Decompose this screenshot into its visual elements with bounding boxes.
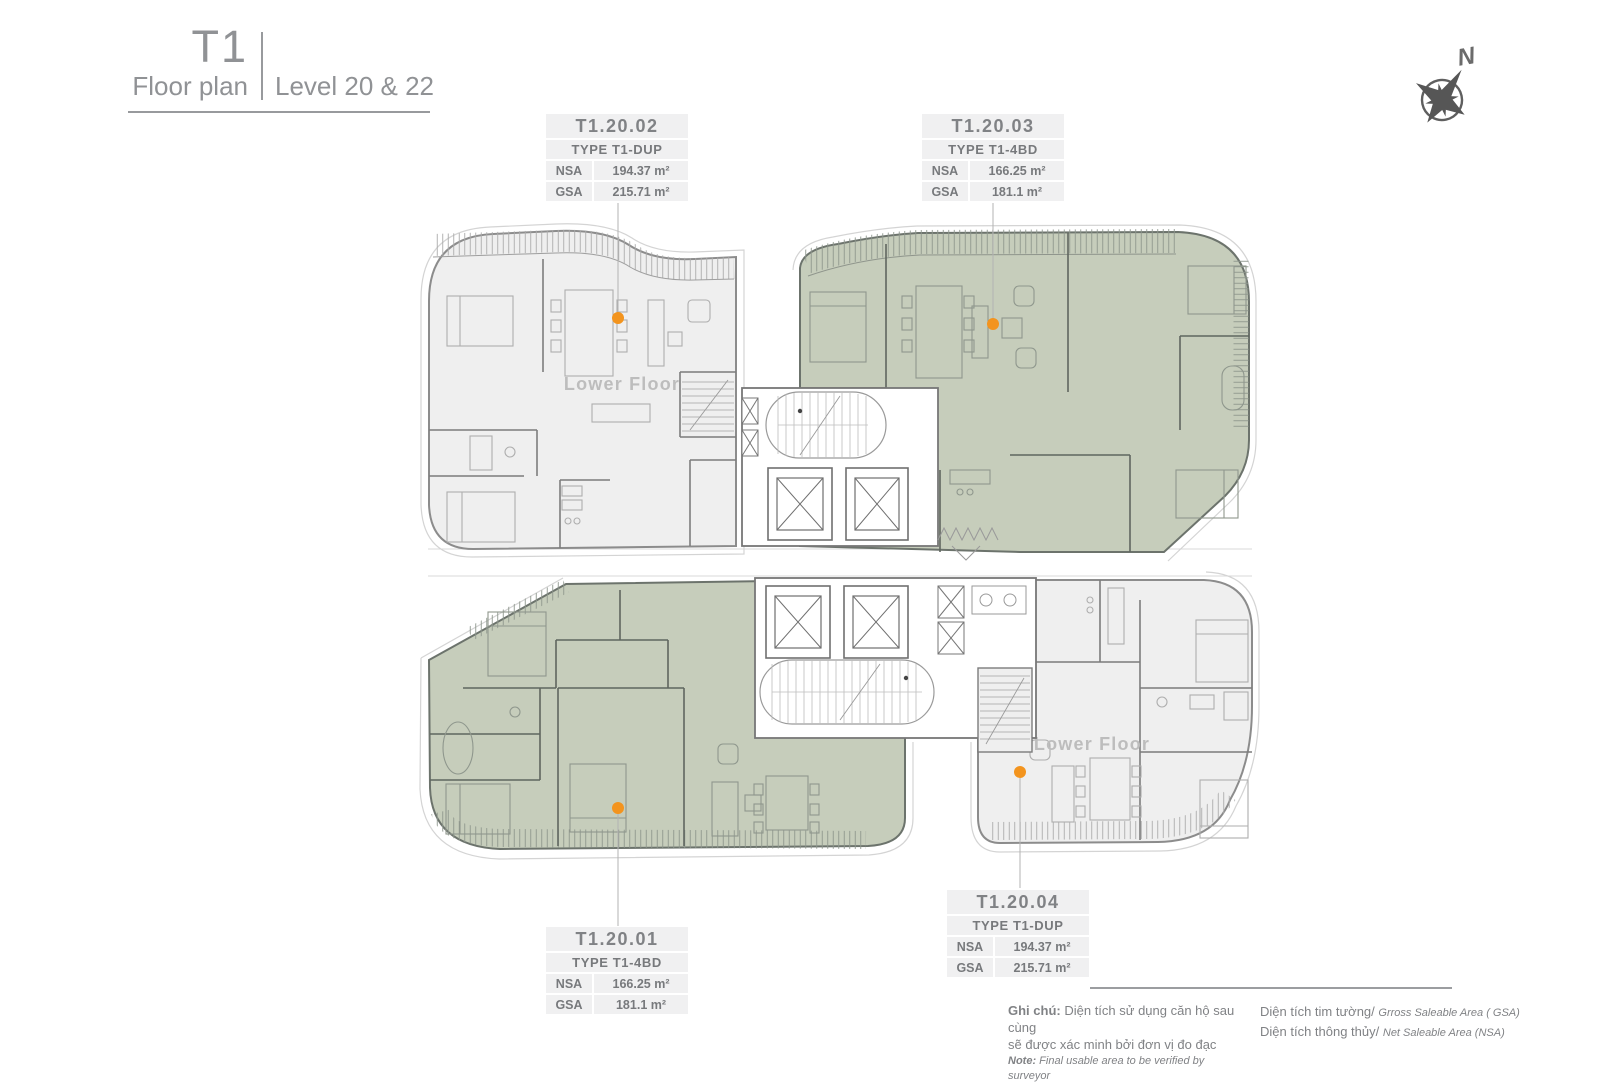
level-label: Level 20 & 22 — [275, 73, 434, 100]
nsa-label: NSA — [947, 937, 993, 956]
notes-label: Ghi chú: — [1008, 1003, 1061, 1018]
note-label: Note: — [1008, 1055, 1036, 1067]
elevator — [766, 586, 830, 658]
unit-id: T1.20.02 — [546, 114, 688, 138]
elevator — [844, 586, 908, 658]
title-block: T1 Floor plan Level 20 & 22 — [118, 24, 434, 100]
central-corridor — [428, 549, 1252, 576]
marker-dot-t1-20-01 — [612, 802, 624, 814]
unit-type: TYPE T1-DUP — [947, 916, 1089, 935]
header-rule — [128, 111, 430, 113]
lower-floor-note: Lower Floor — [1034, 734, 1150, 754]
compass-icon: N — [1392, 38, 1492, 143]
unit-type: TYPE T1-DUP — [546, 140, 688, 159]
notes-legend: Ghi chú: Diện tích sử dụng căn hộ sau cù… — [1008, 1002, 1520, 1083]
gsa-label: GSA — [546, 182, 592, 201]
stair-oval — [760, 660, 934, 724]
unit-id: T1.20.04 — [947, 890, 1089, 914]
marker-dot-t1-20-04 — [1014, 766, 1026, 778]
notes-rule — [1090, 987, 1452, 989]
notes-line2: sẽ được xác minh bởi đơn vị đo đạc — [1008, 1036, 1244, 1053]
marker-dot-t1-20-03 — [987, 318, 999, 330]
unit-card-t1-20-04: T1.20.04 TYPE T1-DUP NSA 194.37 m² GSA 2… — [947, 890, 1089, 977]
unit-card-t1-20-03: T1.20.03 TYPE T1-4BD NSA 166.25 m² GSA 1… — [922, 114, 1064, 201]
gsa-value: 215.71 m² — [995, 958, 1089, 977]
note-text: Final usable area to be verified by surv… — [1008, 1055, 1204, 1082]
gsa-value: 181.1 m² — [594, 995, 688, 1014]
nsa-value: 194.37 m² — [594, 161, 688, 180]
tower-title: T1 — [191, 24, 248, 70]
nsa-definition: Diện tích thông thủy/ Net Saleable Area … — [1260, 1022, 1520, 1042]
gsa-value: 181.1 m² — [970, 182, 1064, 201]
unit-card-t1-20-02: T1.20.02 TYPE T1-DUP NSA 194.37 m² GSA 2… — [546, 114, 688, 201]
nsa-label: NSA — [922, 161, 968, 180]
duplex-stair — [978, 668, 1032, 752]
unit-type: TYPE T1-4BD — [922, 140, 1064, 159]
nsa-label: NSA — [546, 974, 592, 993]
unit-id: T1.20.01 — [546, 927, 688, 951]
notes-vietnamese: Ghi chú: Diện tích sử dụng căn hộ sau cù… — [1008, 1002, 1244, 1083]
header-divider — [261, 32, 263, 100]
gsa-definition: Diện tích tim tường/ Grross Saleable Are… — [1260, 1002, 1520, 1022]
lower-floor-note: Lower Floor — [564, 374, 680, 394]
unit-type: TYPE T1-4BD — [546, 953, 688, 972]
nsa-value: 166.25 m² — [970, 161, 1064, 180]
floor-plan-drawing: Lower Floor — [0, 0, 1600, 1083]
unit-id: T1.20.03 — [922, 114, 1064, 138]
north-label: N — [1455, 42, 1477, 72]
bottom-core — [755, 578, 1036, 752]
gsa-value: 215.71 m² — [594, 182, 688, 201]
nsa-value: 194.37 m² — [995, 937, 1089, 956]
plan-subtitle: Floor plan — [132, 73, 248, 100]
gsa-label: GSA — [546, 995, 592, 1014]
gsa-label: GSA — [922, 182, 968, 201]
unit-card-t1-20-01: T1.20.01 TYPE T1-4BD NSA 166.25 m² GSA 1… — [546, 927, 688, 1014]
legend-definitions: Diện tích tim tường/ Grross Saleable Are… — [1260, 1002, 1520, 1083]
gsa-label: GSA — [947, 958, 993, 977]
floorplan-page: Lower Floor — [0, 0, 1600, 1083]
marker-dot-t1-20-02 — [612, 312, 624, 324]
nsa-label: NSA — [546, 161, 592, 180]
elevator — [846, 468, 908, 540]
unit-shape-t1-20-02: Lower Floor — [421, 224, 744, 557]
nsa-value: 166.25 m² — [594, 974, 688, 993]
elevator — [768, 468, 832, 540]
stair-oval — [766, 392, 886, 458]
